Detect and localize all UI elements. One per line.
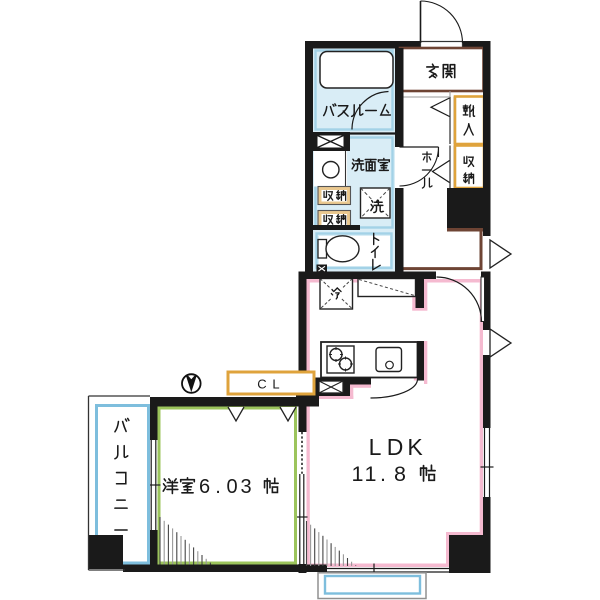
svg-text:L: L [369,434,382,460]
svg-text:.: . [215,476,221,498]
svg-text:L: L [272,377,279,392]
svg-text:.: . [380,462,386,486]
svg-text:8: 8 [394,462,406,486]
svg-text:1: 1 [352,462,364,486]
svg-text:K: K [407,434,423,460]
svg-text:C: C [257,377,266,392]
svg-text:0: 0 [226,476,237,498]
svg-text:3: 3 [240,476,251,498]
svg-text:D: D [387,434,404,460]
svg-text:6: 6 [199,476,210,498]
svg-text:1: 1 [365,462,377,486]
